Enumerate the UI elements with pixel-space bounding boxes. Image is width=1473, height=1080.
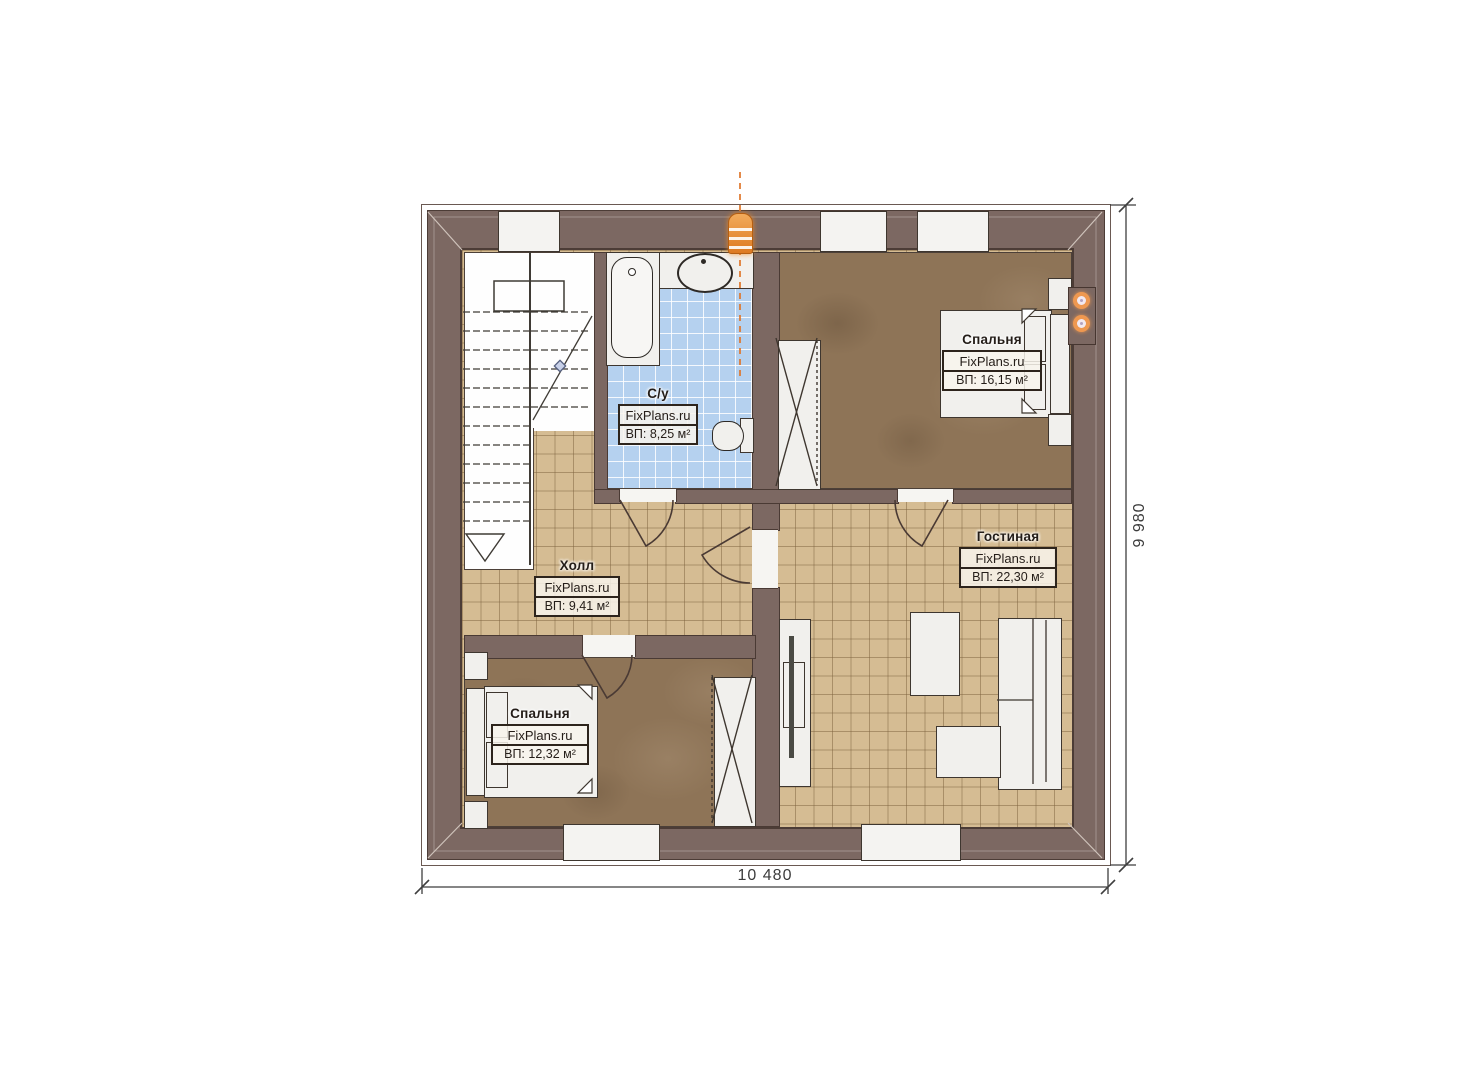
room-name: Холл: [534, 558, 620, 573]
stairwell-floor-lower: [464, 428, 534, 570]
dimension-height: 9 980: [1131, 502, 1149, 547]
toilet-bowl-icon: [712, 421, 744, 451]
floor-plan-canvas: С/у FixPlans.ru ВП: 8,25 м² Спальня FixP…: [0, 0, 1473, 1080]
bedroom-bottom-door-threshold: [582, 635, 636, 657]
watermark-text: FixPlans.ru: [961, 549, 1055, 567]
room-name: С/у: [618, 386, 698, 401]
room-label-living: Гостиная FixPlans.ru ВП: 22,30 м²: [959, 529, 1057, 588]
tv-icon: [789, 636, 794, 758]
window-bottom-living: [861, 824, 961, 861]
window-top-bedroom-2: [917, 211, 989, 252]
wardrobe-bottom-bedroom: [714, 677, 756, 827]
nightstand-icon: [1048, 414, 1072, 446]
wall-bedroom-living-right: [952, 489, 1072, 504]
wall-center-lower: [752, 587, 780, 827]
room-name: Спальня: [491, 706, 589, 721]
headboard-bottom-bedroom: [466, 688, 486, 796]
room-label-bathroom: С/у FixPlans.ru ВП: 8,25 м²: [618, 386, 698, 445]
stairwell-floor: [464, 252, 596, 431]
room-label-hall: Холл FixPlans.ru ВП: 9,41 м²: [534, 558, 620, 617]
watermark-text: FixPlans.ru: [620, 406, 696, 424]
sofa-main: [998, 618, 1062, 790]
room-area-text: ВП: 22,30 м²: [961, 567, 1055, 586]
window-top-bedroom-1: [820, 211, 887, 252]
chimney-icon: [728, 213, 753, 254]
nightstand-icon: [464, 801, 488, 829]
nightstand-icon: [464, 652, 488, 680]
sink-faucet-icon: [701, 259, 706, 264]
flue-spot-icon: [1073, 292, 1090, 309]
dimension-width: 10 480: [738, 867, 793, 885]
watermark-text: FixPlans.ru: [493, 726, 587, 744]
wall-bathroom-bedroom-mid: [675, 489, 899, 504]
bathroom-door-threshold: [619, 489, 677, 502]
window-bottom-bedroom: [563, 824, 660, 861]
room-area-text: ВП: 16,15 м²: [944, 370, 1040, 389]
tv-bracket: [783, 662, 805, 728]
room-area-text: ВП: 9,41 м²: [536, 596, 618, 615]
bedroom-top-door-threshold: [897, 489, 954, 502]
coffee-table: [910, 612, 960, 696]
room-label-bedroom-top: Спальня FixPlans.ru ВП: 16,15 м²: [942, 332, 1042, 391]
window-top-stairs: [498, 211, 560, 252]
wall-bedroom-bottom-right: [634, 635, 756, 659]
bathtub-drain-icon: [628, 268, 636, 276]
room-area-text: ВП: 8,25 м²: [620, 424, 696, 443]
wardrobe-top-bedroom: [778, 340, 821, 490]
room-label-bedroom-bottom: Спальня FixPlans.ru ВП: 12,32 м²: [491, 706, 589, 765]
room-name: Спальня: [942, 332, 1042, 347]
hall-living-door-threshold: [752, 529, 778, 589]
flue-spot-icon: [1073, 315, 1090, 332]
flue-niche: [1068, 287, 1096, 345]
headboard-top-bedroom: [1050, 314, 1070, 414]
watermark-text: FixPlans.ru: [536, 578, 618, 596]
room-area-text: ВП: 12,32 м²: [493, 744, 587, 763]
room-name: Гостиная: [959, 529, 1057, 544]
sofa-chaise: [936, 726, 1001, 778]
watermark-text: FixPlans.ru: [944, 352, 1040, 370]
wall-bathroom-hall-left: [594, 489, 621, 504]
